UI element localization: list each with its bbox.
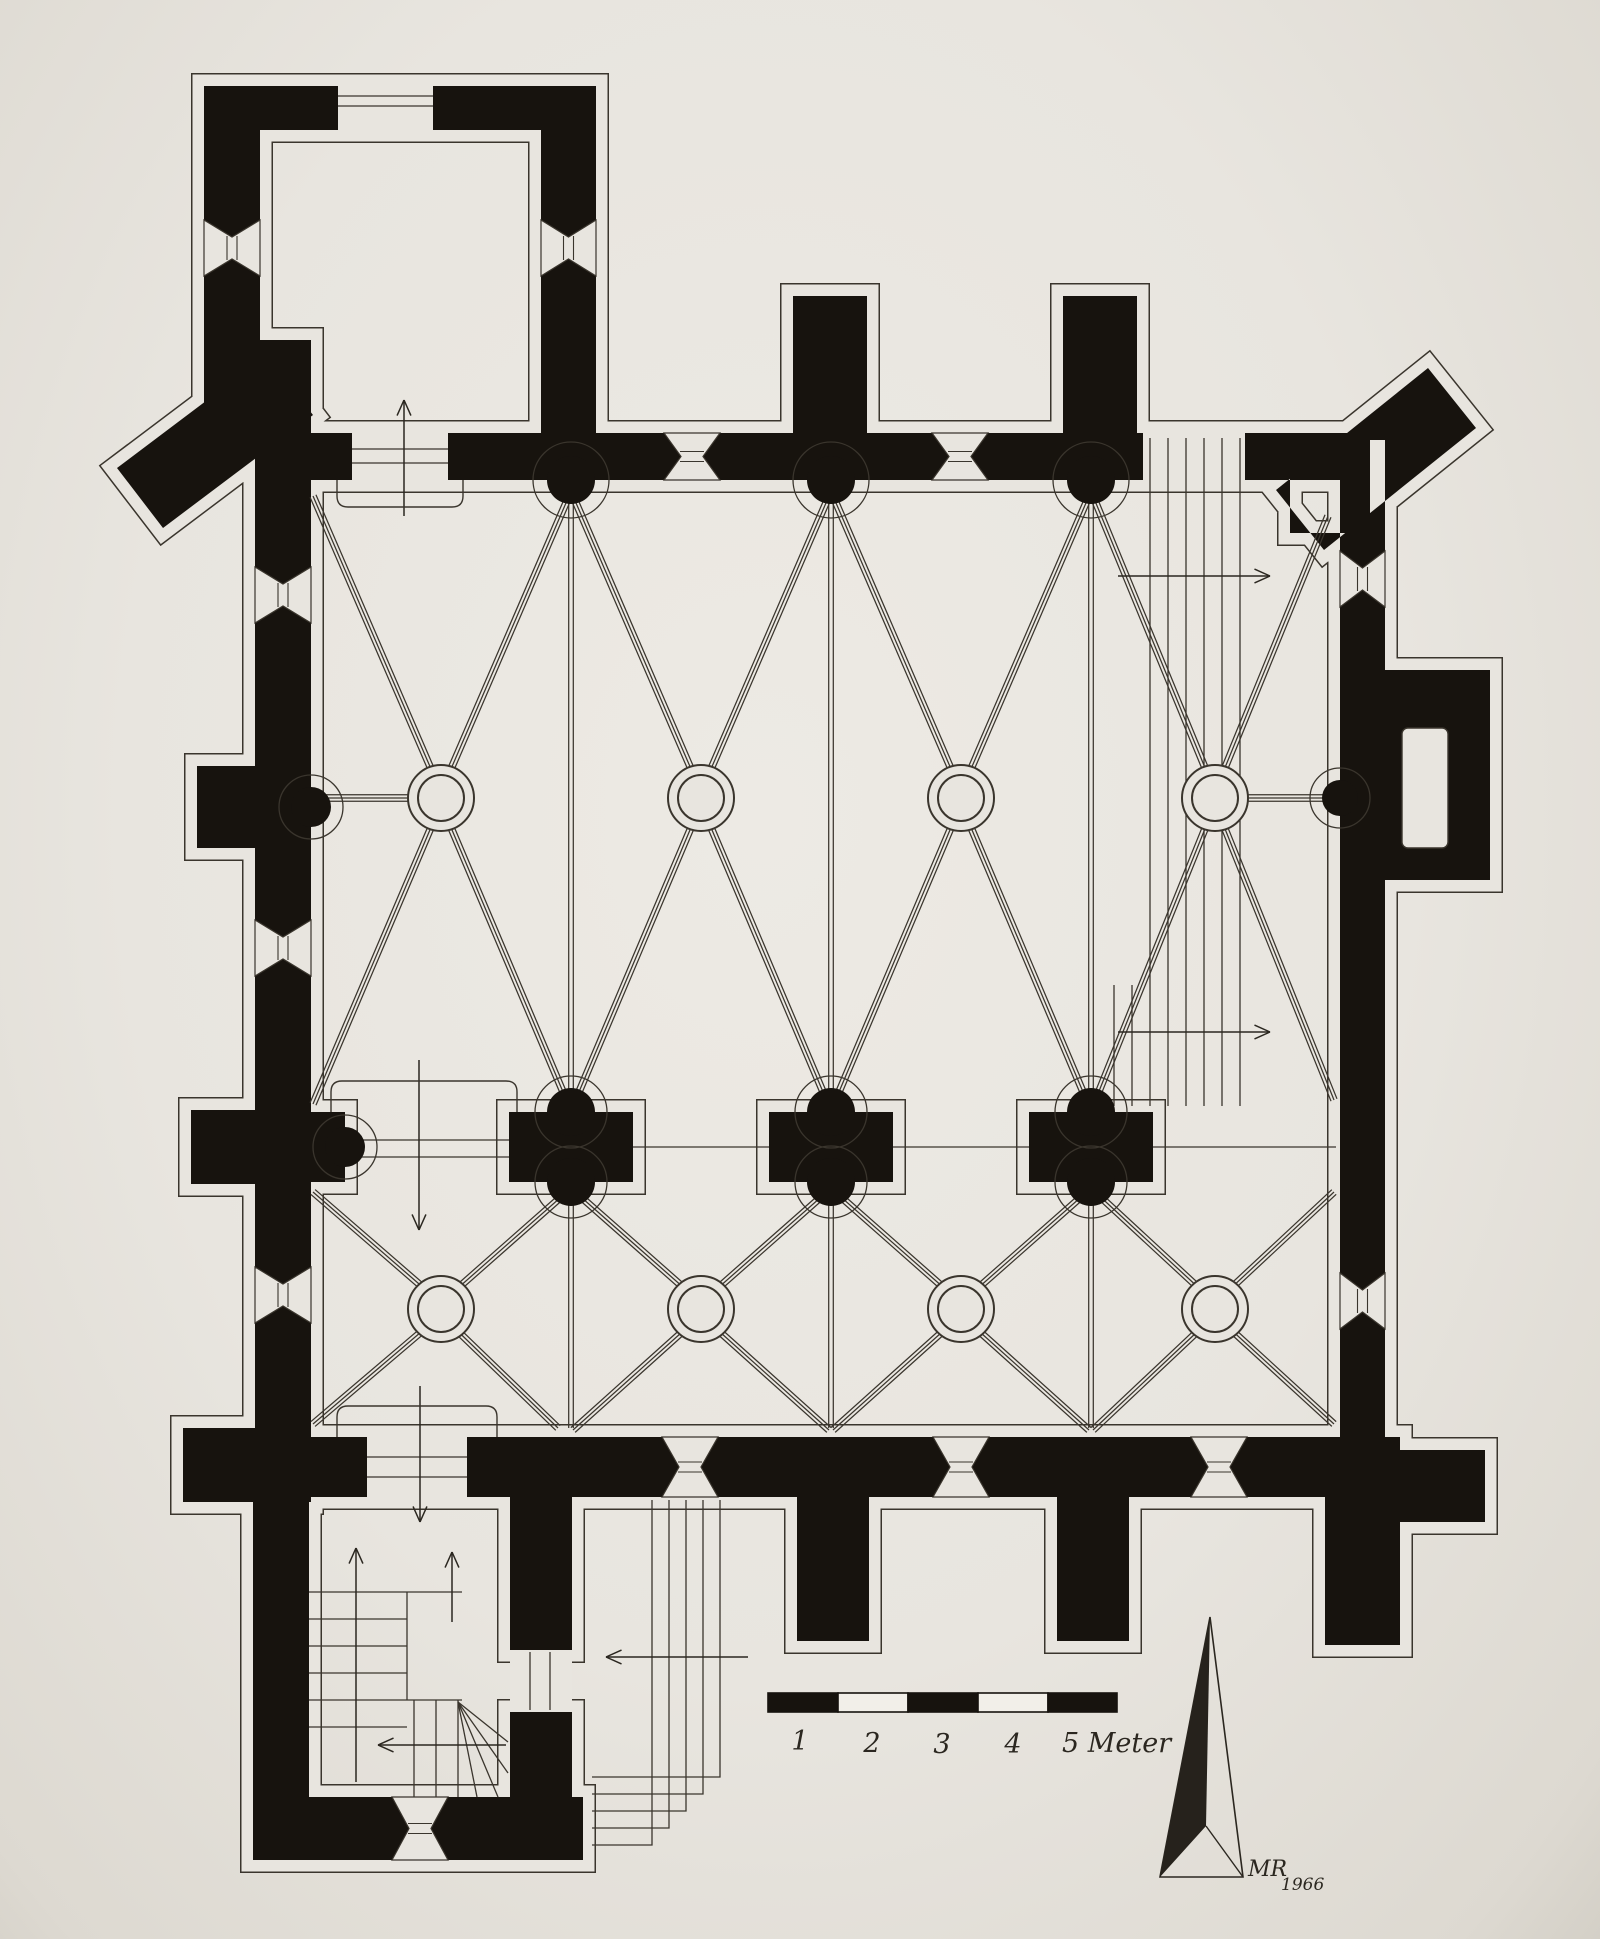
vault-rib [964, 803, 1092, 1105]
vault-rib [833, 496, 961, 792]
vault-rib [958, 805, 1086, 1107]
scale-segment-5 [1048, 1693, 1117, 1712]
arrow-head [1254, 1032, 1270, 1039]
arrow-head [378, 1745, 394, 1752]
vault-rib [313, 496, 441, 792]
scale-label-1: 1 [791, 1726, 808, 1757]
arrow-head [452, 1552, 459, 1568]
vault-rib [698, 805, 826, 1107]
vault-rib [1215, 516, 1328, 792]
vault-rib [444, 803, 572, 1105]
vault-rib [1096, 495, 1218, 791]
arrow-head [606, 1650, 622, 1657]
tower-staircase [309, 1592, 508, 1797]
vault-rib [441, 804, 569, 1106]
vault-rib [704, 497, 832, 793]
vault-rib [1090, 497, 1212, 793]
arrow-head [606, 1657, 622, 1664]
scale-segment-1 [768, 1693, 838, 1712]
respond-shaft [1322, 780, 1358, 816]
scale-segment-4 [978, 1693, 1048, 1712]
respond-shaft [325, 1127, 365, 1167]
floor-plan-page: 1 2 3 4 5 Meter MR 1966 [0, 0, 1600, 1939]
respond-shaft [547, 1158, 595, 1206]
vault-rib [441, 496, 569, 792]
arrow-head [1254, 569, 1270, 576]
scale-label-2: 2 [862, 1728, 880, 1759]
arrow-head [1254, 576, 1270, 583]
vault-rib [576, 805, 704, 1107]
masonry-walls [117, 86, 1490, 1860]
vault-rib [961, 804, 1089, 1106]
respond-shaft [547, 1088, 595, 1136]
scale-label-4: 4 [1003, 1729, 1021, 1760]
gallery-stair-line [592, 1500, 652, 1845]
respond-shaft [1067, 456, 1115, 504]
vault-rib [1093, 804, 1215, 1106]
vault-rib [836, 495, 964, 791]
arrow-head [445, 1552, 452, 1568]
window-gap [338, 86, 433, 130]
arrow-head [378, 1738, 394, 1745]
vault-rib [310, 497, 438, 793]
arrow-head [397, 400, 404, 416]
vault-rib [1093, 496, 1215, 792]
scale-label-5-meter: 5 Meter [1062, 1728, 1173, 1759]
respond-shaft [807, 456, 855, 504]
respond-shaft [547, 456, 595, 504]
vault-rib [444, 497, 572, 793]
vault-rib [573, 804, 701, 1106]
vault-rib [438, 805, 566, 1107]
vault-rib [570, 497, 698, 793]
north-arrow-icon [1160, 1617, 1243, 1877]
door-gap [1143, 433, 1245, 480]
scale-label-3: 3 [933, 1729, 950, 1760]
vault-rib [704, 803, 832, 1105]
vault-rib [316, 805, 444, 1105]
vault-rib [1218, 517, 1331, 793]
gallery-stair-line [592, 1500, 686, 1811]
vault-rib [701, 496, 829, 792]
vault-rib [1215, 804, 1334, 1100]
floor-plan-drawing: 1 2 3 4 5 Meter MR 1966 [0, 0, 1600, 1939]
vault-rib [698, 495, 826, 791]
respond-shaft [807, 1088, 855, 1136]
vault-rib [438, 495, 566, 791]
vault-rib [1212, 805, 1331, 1101]
arrow-head [404, 400, 411, 416]
arrow-head [419, 1214, 426, 1230]
respond-shaft [1067, 1158, 1115, 1206]
vault-rib [576, 495, 704, 791]
scale-segment-2 [838, 1693, 908, 1712]
nave-aisle-door-niche [331, 1081, 517, 1112]
arrow-head [1254, 1025, 1270, 1032]
vault-rib [836, 805, 964, 1107]
vault-rib [701, 804, 829, 1106]
gallery-stair-line [592, 1500, 669, 1828]
respond-shaft [291, 787, 331, 827]
vault-rib [961, 496, 1089, 792]
respond-shaft [807, 1158, 855, 1206]
vault-rib [316, 495, 444, 791]
east-wall-niche [1402, 728, 1448, 848]
vault-rib [958, 495, 1086, 791]
signature: MR 1966 [1247, 1857, 1324, 1895]
vault-rib [830, 803, 958, 1105]
door-gap [352, 433, 448, 480]
arrow-head [356, 1548, 363, 1564]
vault-rib [833, 804, 961, 1106]
vault-rib [1090, 803, 1212, 1105]
vault-rib [1212, 515, 1325, 791]
signature-year: 1966 [1281, 1875, 1324, 1895]
vault-rib [310, 803, 438, 1103]
arrow-head [349, 1548, 356, 1564]
scale-bar: 1 2 3 4 5 Meter [768, 1693, 1173, 1760]
arrow-head [412, 1214, 419, 1230]
vault-rib [964, 497, 1092, 793]
door-gap [510, 1650, 572, 1712]
respond-shaft [1067, 1088, 1115, 1136]
vault-boss-rings [408, 765, 1248, 1342]
vault-rib [570, 803, 698, 1105]
scale-segment-3 [908, 1693, 978, 1712]
gallery-stair-line [592, 1500, 720, 1777]
vault-rib [1218, 803, 1337, 1099]
vault-rib [830, 497, 958, 793]
vault-rib [573, 496, 701, 792]
door-gap [367, 1437, 467, 1497]
vault-rib [313, 804, 441, 1104]
